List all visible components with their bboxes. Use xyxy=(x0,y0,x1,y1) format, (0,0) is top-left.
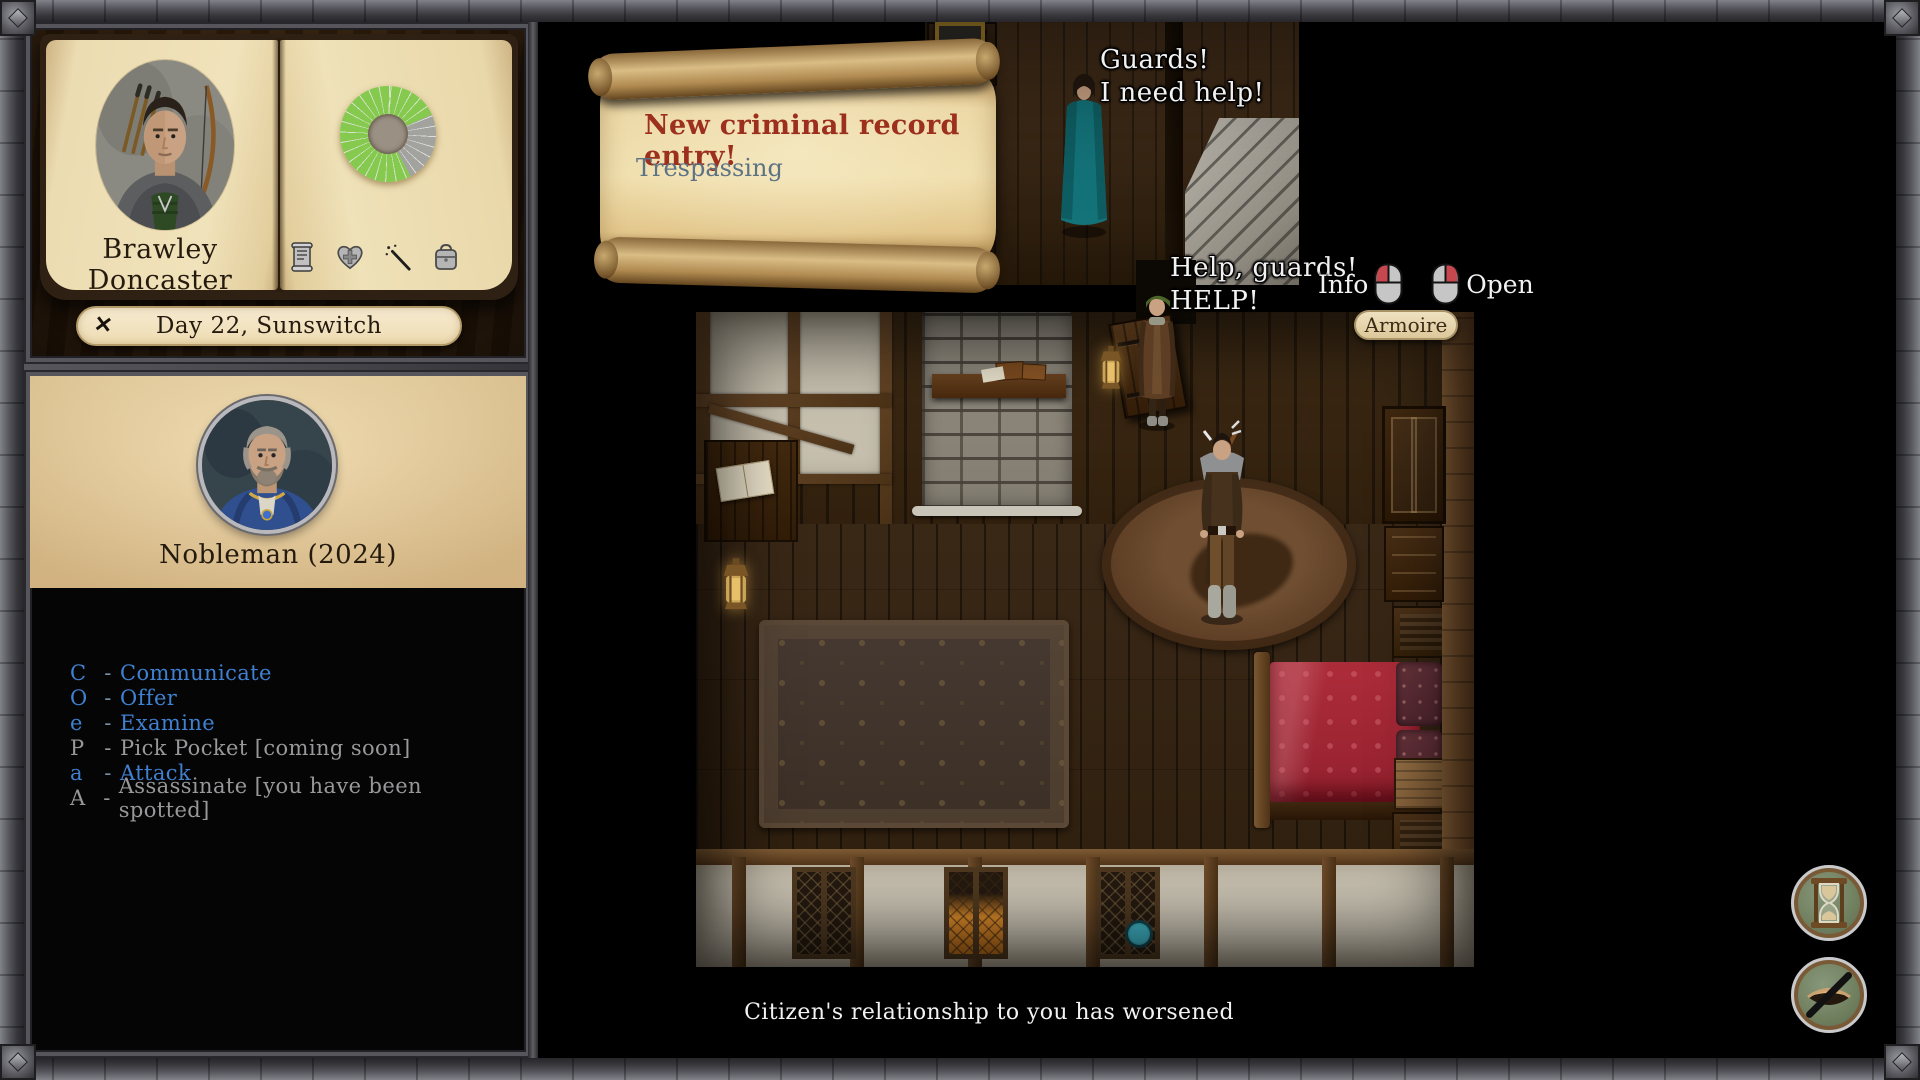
sidebar: Brawley Doncaster xyxy=(24,22,534,1058)
target-portrait xyxy=(198,396,336,534)
mouse-hover-legend: Info Open xyxy=(1318,260,1534,308)
status-message: Citizen's relationship to you has worsen… xyxy=(689,1000,1289,1025)
wall-beam xyxy=(1204,857,1218,967)
action-separator: - xyxy=(96,686,120,710)
game-viewport: New criminal record entry! Trespassing G… xyxy=(538,22,1896,1058)
action-key: C xyxy=(70,661,96,685)
ornate-rug xyxy=(759,620,1069,828)
speech-guard-call: Guards! I need help! xyxy=(1100,44,1265,110)
inventory-bag-icon[interactable] xyxy=(432,242,460,272)
target-panel: Nobleman (2024) C - Communicate O - Offe… xyxy=(26,372,530,1056)
action-label: Examine xyxy=(120,711,215,735)
action-assassinate: A - Assassinate [you have been spotted] xyxy=(70,785,510,810)
stat-wheel[interactable] xyxy=(340,86,436,182)
parchment-roll-bottom xyxy=(597,236,996,293)
frame-corner xyxy=(0,1044,36,1080)
hourglass-icon xyxy=(1807,876,1851,930)
wall-beam xyxy=(880,312,892,524)
player-portrait xyxy=(96,60,234,230)
action-separator: - xyxy=(96,736,120,760)
mouse-left-icon xyxy=(1374,263,1403,305)
room-wall-right xyxy=(1442,312,1474,865)
frame-corner xyxy=(1884,1044,1920,1080)
frame-corner xyxy=(0,0,36,36)
action-key: e xyxy=(70,711,96,735)
action-separator: - xyxy=(95,786,118,810)
character-name: Brawley Doncaster xyxy=(40,234,280,296)
action-label: Offer xyxy=(120,686,177,710)
action-communicate[interactable]: C - Communicate xyxy=(70,660,510,685)
floor-lantern-icon xyxy=(716,556,756,618)
wait-hourglass-button[interactable] xyxy=(1791,865,1867,941)
tooltip-text: Armoire xyxy=(1365,313,1448,337)
drawer-chest[interactable] xyxy=(1384,526,1444,602)
info-label: Info xyxy=(1318,270,1368,299)
action-separator: - xyxy=(96,661,120,685)
notification-body: Trespassing xyxy=(636,154,936,182)
action-label: Communicate xyxy=(120,661,272,685)
frame-divider xyxy=(528,22,538,1058)
chimney-trim xyxy=(912,506,1082,516)
action-examine[interactable]: e - Examine xyxy=(70,710,510,735)
pillow xyxy=(1396,662,1442,726)
speech-line: I need help! xyxy=(1100,77,1265,110)
magic-wand-icon[interactable] xyxy=(384,242,412,272)
action-menu: C - Communicate O - Offer e - Examine P … xyxy=(70,660,510,810)
character-book-panel: Brawley Doncaster xyxy=(26,24,530,362)
action-label: Assassinate [you have been spotted] xyxy=(119,774,510,822)
action-key: a xyxy=(70,761,96,785)
wall-beam xyxy=(696,394,892,407)
lattice-window[interactable] xyxy=(1096,867,1160,959)
stone-chimney xyxy=(922,312,1072,508)
mouse-right-icon xyxy=(1431,263,1460,305)
target-header: Nobleman (2024) xyxy=(30,376,526,588)
health-heart-icon[interactable] xyxy=(336,242,364,272)
action-pick-pocket: P - Pick Pocket [coming soon] xyxy=(70,735,510,760)
lattice-window[interactable] xyxy=(792,867,856,959)
stealth-eye-button[interactable] xyxy=(1791,957,1867,1033)
action-key: A xyxy=(70,786,95,810)
player-portrait-image xyxy=(96,60,234,230)
action-label: Pick Pocket [coming soon] xyxy=(120,736,411,760)
frame-edge-left xyxy=(0,0,24,1080)
frame-edge-bottom xyxy=(0,1058,1920,1080)
records-scroll-icon[interactable] xyxy=(288,242,316,272)
day-banner: ✕ Day 22, Sunswitch xyxy=(76,306,462,346)
armoire-object[interactable] xyxy=(1382,406,1446,524)
room-wall-bottom xyxy=(696,857,1474,967)
frame-corner xyxy=(1884,0,1920,36)
day-banner-text: Day 22, Sunswitch xyxy=(78,313,460,339)
open-label: Open xyxy=(1466,270,1533,299)
player-sprite xyxy=(1192,416,1252,628)
lattice-window-lit[interactable] xyxy=(944,867,1008,959)
wall-beam xyxy=(1440,857,1454,967)
action-separator: - xyxy=(96,761,120,785)
frame-edge-top xyxy=(0,0,1920,22)
action-separator: - xyxy=(96,711,120,735)
wall-beam xyxy=(1322,857,1336,967)
speech-line: Guards! xyxy=(1100,44,1265,77)
action-key: O xyxy=(70,686,96,710)
door-lantern-icon xyxy=(1094,344,1128,396)
nobleman-portrait-image xyxy=(202,400,332,530)
criminal-record-notification[interactable]: New criminal record entry! Trespassing xyxy=(592,38,1004,290)
target-title: Nobleman (2024) xyxy=(30,540,526,570)
eye-slash-icon xyxy=(1804,970,1854,1020)
action-offer[interactable]: O - Offer xyxy=(70,685,510,710)
close-icon[interactable]: ✕ xyxy=(92,311,114,339)
action-key: P xyxy=(70,736,96,760)
frame-edge-right xyxy=(1896,0,1920,1080)
bed-rail xyxy=(1254,652,1270,828)
shelf-book[interactable] xyxy=(1022,363,1047,380)
wall-beam xyxy=(732,857,746,967)
book-icon-row xyxy=(288,240,508,274)
character-book: Brawley Doncaster xyxy=(40,34,518,300)
armoire-tooltip: Armoire xyxy=(1354,310,1458,340)
wall-beam xyxy=(696,849,1474,865)
room xyxy=(696,312,1474,967)
